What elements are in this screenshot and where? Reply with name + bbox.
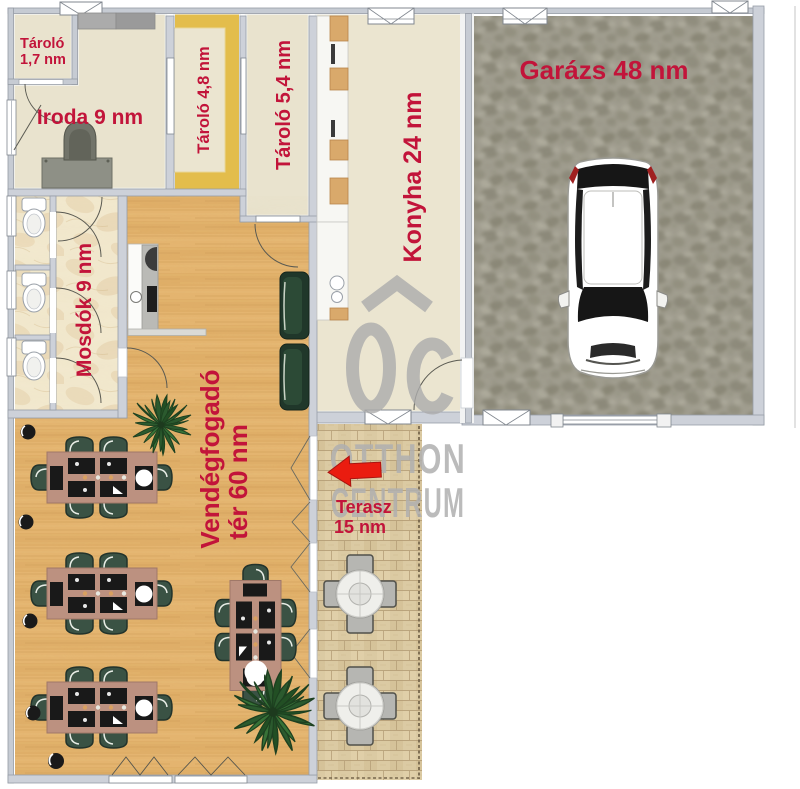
- svg-text:Garázs 48 nm: Garázs 48 nm: [519, 55, 688, 85]
- svg-text:15 nm: 15 nm: [334, 517, 386, 537]
- svg-text:1,7 nm: 1,7 nm: [20, 52, 66, 68]
- svg-text:Terasz: Terasz: [336, 497, 392, 517]
- svg-text:Tároló: Tároló: [20, 36, 64, 52]
- svg-text:Vendégfogadó: Vendégfogadó: [195, 369, 225, 548]
- svg-text:tér 60 nm: tér 60 nm: [223, 424, 253, 540]
- svg-text:Iroda 9 nm: Iroda 9 nm: [37, 106, 143, 129]
- svg-text:Konyha 24 nm: Konyha 24 nm: [399, 92, 427, 263]
- svg-text:Tároló 4,8 nm: Tároló 4,8 nm: [195, 46, 213, 153]
- svg-text:Mosdók 9 nm: Mosdók 9 nm: [73, 243, 96, 377]
- svg-text:Tároló 5,4 nm: Tároló 5,4 nm: [273, 40, 295, 170]
